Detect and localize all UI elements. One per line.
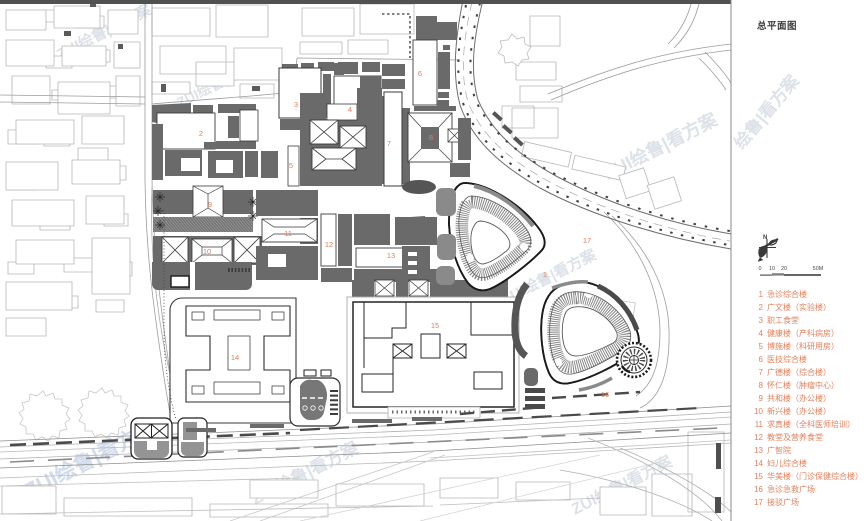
svg-text:4: 4 xyxy=(348,105,352,114)
svg-text:17: 17 xyxy=(583,236,591,245)
svg-text:1: 1 xyxy=(759,290,764,299)
svg-text:9: 9 xyxy=(759,394,764,403)
svg-text:16: 16 xyxy=(754,485,763,494)
svg-text:新兴楼（办公楼）: 新兴楼（办公楼） xyxy=(767,406,831,416)
svg-text:16: 16 xyxy=(601,390,609,399)
svg-text:10: 10 xyxy=(203,247,211,256)
svg-text:急诊综合楼: 急诊综合楼 xyxy=(767,289,807,299)
svg-text:10: 10 xyxy=(754,407,763,416)
svg-text:广德楼（综合楼）: 广德楼（综合楼） xyxy=(767,367,831,377)
svg-text:5: 5 xyxy=(759,342,764,351)
svg-text:13: 13 xyxy=(754,446,763,455)
svg-text:2: 2 xyxy=(759,303,764,312)
svg-text:14: 14 xyxy=(231,353,239,362)
svg-text:9: 9 xyxy=(208,200,212,209)
svg-text:17: 17 xyxy=(754,498,763,507)
svg-text:教堂及营养食堂: 教堂及营养食堂 xyxy=(767,432,823,442)
svg-text:健康楼（产科病房）: 健康楼（产科病房） xyxy=(767,328,839,338)
svg-text:怀仁楼（肿瘤中心）: 怀仁楼（肿瘤中心） xyxy=(767,380,839,390)
svg-text:2: 2 xyxy=(199,129,203,138)
svg-text:15: 15 xyxy=(431,321,439,330)
svg-text:华美楼（门诊保健综合楼）: 华美楼（门诊保健综合楼） xyxy=(767,471,863,481)
svg-text:总平面图: 总平面图 xyxy=(757,20,797,32)
svg-text:接驳广场: 接驳广场 xyxy=(767,497,799,507)
svg-text:博施楼（科研用房）: 博施楼（科研用房） xyxy=(767,341,839,351)
svg-text:共和楼（办公楼）: 共和楼（办公楼） xyxy=(767,393,831,403)
svg-text:8: 8 xyxy=(429,133,433,142)
svg-text:12: 12 xyxy=(754,433,763,442)
svg-text:1: 1 xyxy=(543,270,547,279)
svg-text:15: 15 xyxy=(754,472,763,481)
svg-text:5: 5 xyxy=(289,161,293,170)
svg-text:0: 0 xyxy=(758,266,761,272)
svg-text:7: 7 xyxy=(387,139,391,148)
svg-text:14: 14 xyxy=(754,459,763,468)
svg-text:11: 11 xyxy=(755,420,764,429)
svg-text:50M: 50M xyxy=(813,266,824,272)
svg-text:8: 8 xyxy=(759,381,764,390)
svg-text:急诊急救广场: 急诊急救广场 xyxy=(767,484,815,494)
svg-text:6: 6 xyxy=(418,69,422,78)
svg-text:10: 10 xyxy=(769,266,775,272)
svg-text:3: 3 xyxy=(294,100,298,109)
svg-text:7: 7 xyxy=(759,368,764,377)
svg-text:职工食堂: 职工食堂 xyxy=(767,315,799,325)
svg-text:广文楼（实验楼）: 广文楼（实验楼） xyxy=(767,302,831,312)
svg-text:6: 6 xyxy=(759,355,764,364)
svg-text:求真楼（全科医师培训）: 求真楼（全科医师培训） xyxy=(767,419,855,429)
svg-text:11: 11 xyxy=(284,229,292,238)
svg-text:12: 12 xyxy=(325,240,333,249)
svg-text:广智院: 广智院 xyxy=(767,445,791,455)
svg-text:妇儿综合楼: 妇儿综合楼 xyxy=(767,458,807,468)
svg-text:3: 3 xyxy=(759,316,764,325)
svg-text:医技综合楼: 医技综合楼 xyxy=(767,354,807,364)
svg-text:20: 20 xyxy=(781,266,787,272)
svg-text:13: 13 xyxy=(387,251,395,260)
svg-text:4: 4 xyxy=(759,329,764,338)
